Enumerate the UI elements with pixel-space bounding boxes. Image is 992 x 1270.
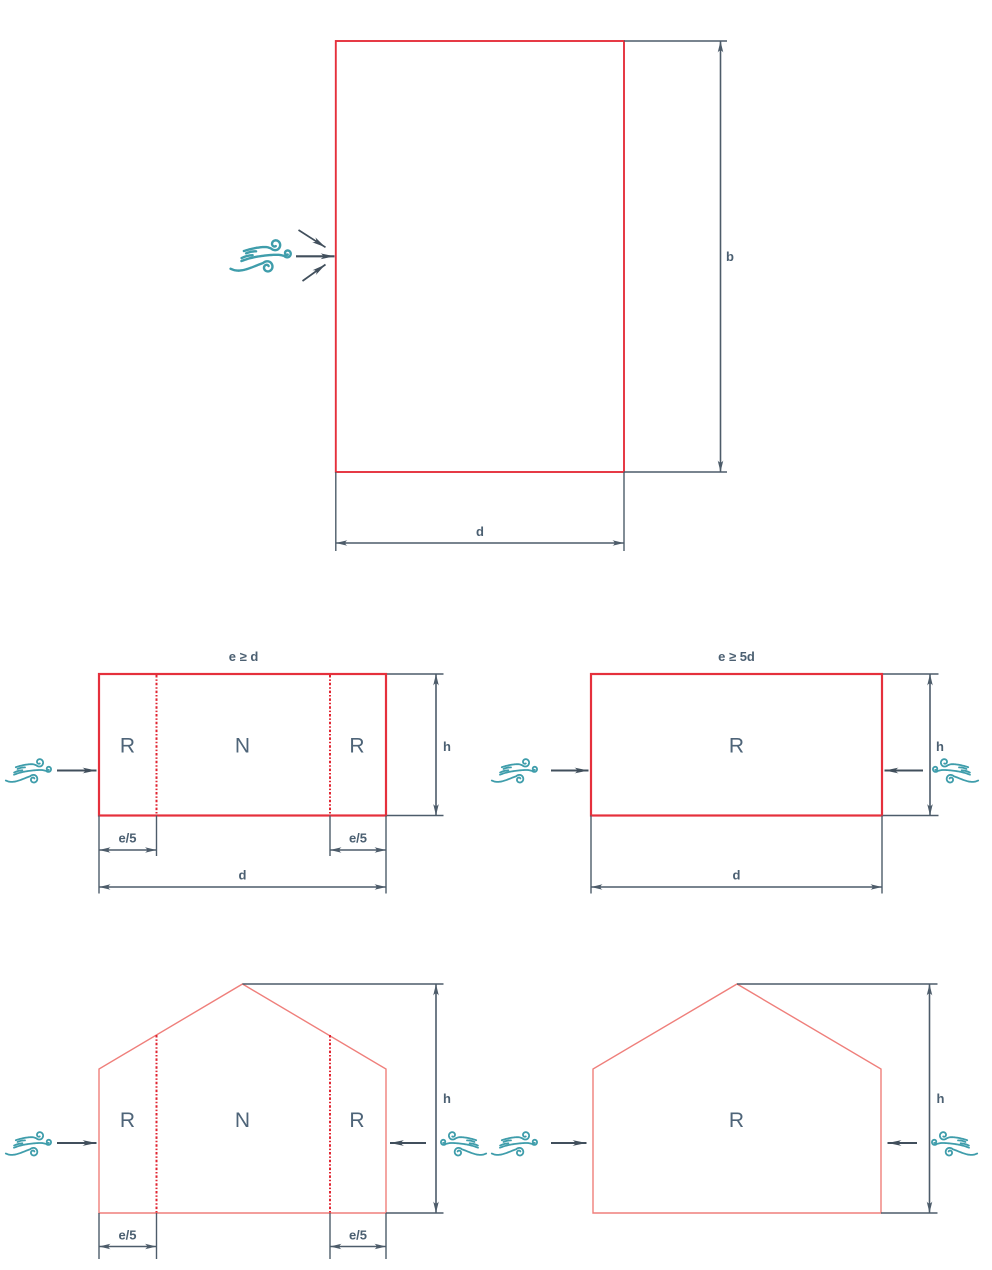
svg-text:d: d xyxy=(476,524,484,539)
svg-text:d: d xyxy=(239,868,247,883)
svg-text:h: h xyxy=(937,1091,945,1106)
svg-text:e/5: e/5 xyxy=(118,831,136,846)
svg-text:e/5: e/5 xyxy=(118,1228,136,1243)
svg-text:e ≥ 5d: e ≥ 5d xyxy=(718,649,755,664)
svg-text:R: R xyxy=(120,735,135,758)
svg-text:R: R xyxy=(349,1109,364,1132)
svg-text:R: R xyxy=(729,1109,744,1132)
svg-text:h: h xyxy=(443,1091,451,1106)
svg-text:N: N xyxy=(235,735,250,758)
svg-text:e/5: e/5 xyxy=(349,1228,367,1243)
svg-text:e ≥ d: e ≥ d xyxy=(229,649,259,664)
svg-text:N: N xyxy=(235,1109,250,1132)
svg-text:R: R xyxy=(349,735,364,758)
svg-text:h: h xyxy=(936,739,944,754)
svg-text:R: R xyxy=(120,1109,135,1132)
svg-text:h: h xyxy=(443,739,451,754)
svg-text:b: b xyxy=(726,249,734,264)
svg-text:e/5: e/5 xyxy=(349,831,367,846)
svg-text:d: d xyxy=(733,868,741,883)
svg-text:R: R xyxy=(729,735,744,758)
